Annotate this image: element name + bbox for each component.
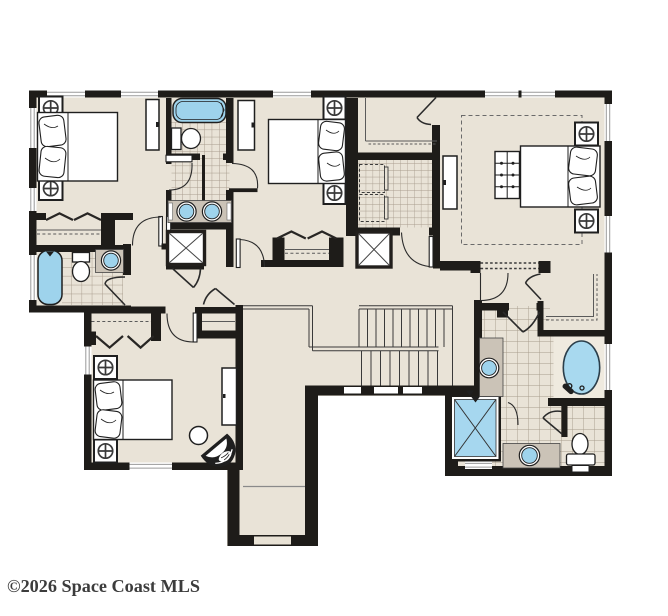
- svg-text:©2026 Space Coast MLS: ©2026 Space Coast MLS: [7, 576, 200, 596]
